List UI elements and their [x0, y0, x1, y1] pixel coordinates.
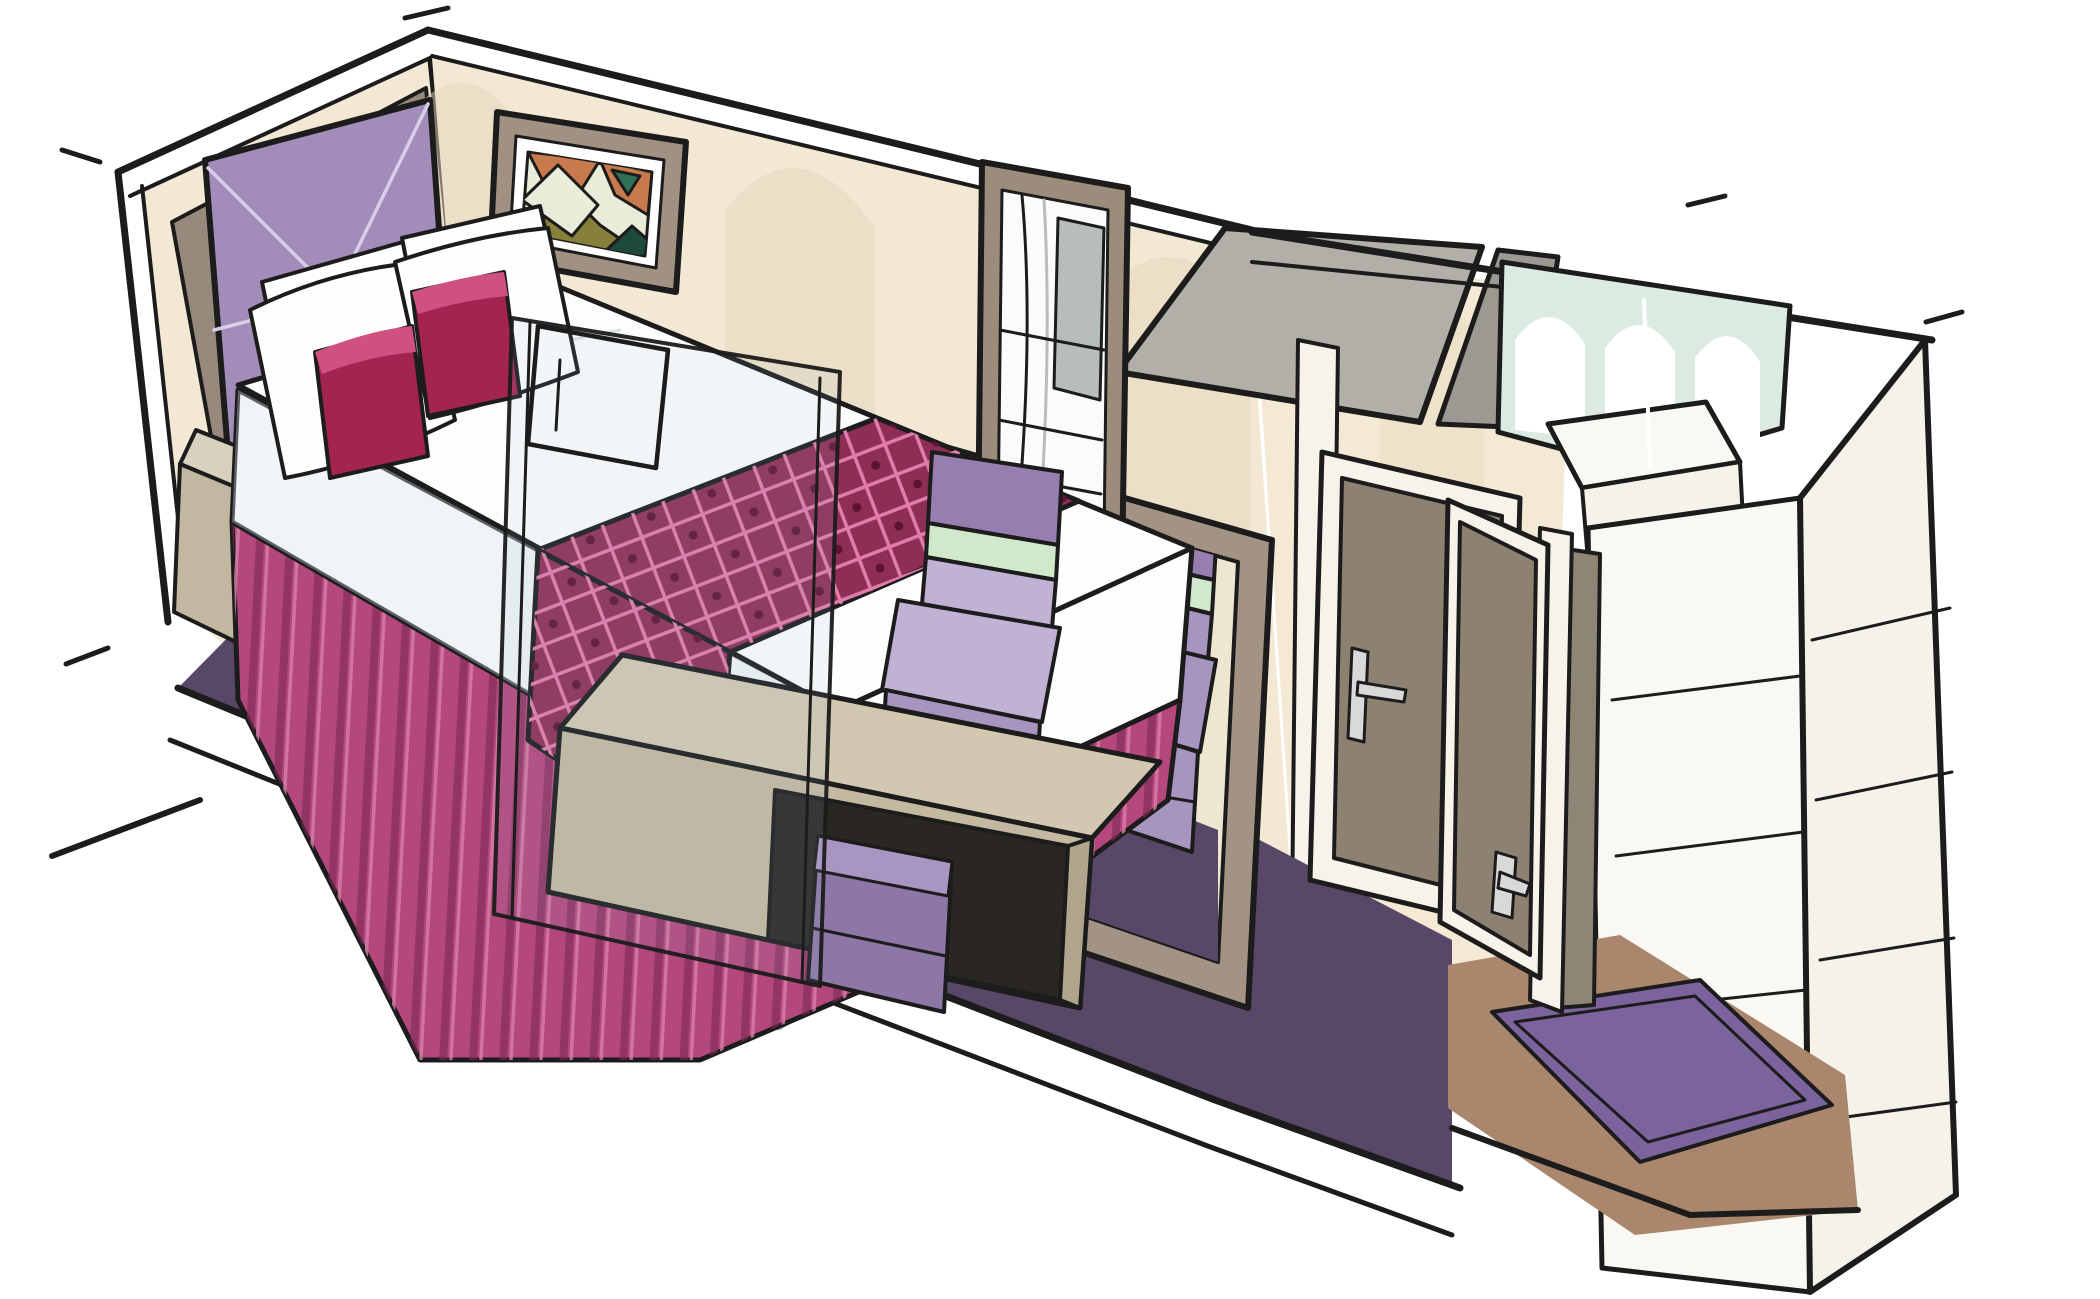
illustration-stage: [0, 0, 2100, 1299]
glass-tv-panel: [494, 318, 840, 986]
corner-tick: [62, 150, 100, 162]
entry-doorway: [1440, 500, 1600, 1012]
corner-tick: [405, 8, 448, 18]
glass-panel: [494, 318, 840, 986]
sketch-dash: [1688, 196, 1725, 205]
curtain-panel-inner-mirror: [1054, 218, 1104, 400]
purple-ottoman: [808, 836, 952, 1012]
sketch-stray-line: [52, 800, 200, 856]
corner-tick: [1926, 312, 1962, 322]
ink-layer: [0, 0, 1962, 1292]
corner-tick: [66, 648, 108, 664]
room-cutaway-illustration: [0, 0, 2100, 1299]
